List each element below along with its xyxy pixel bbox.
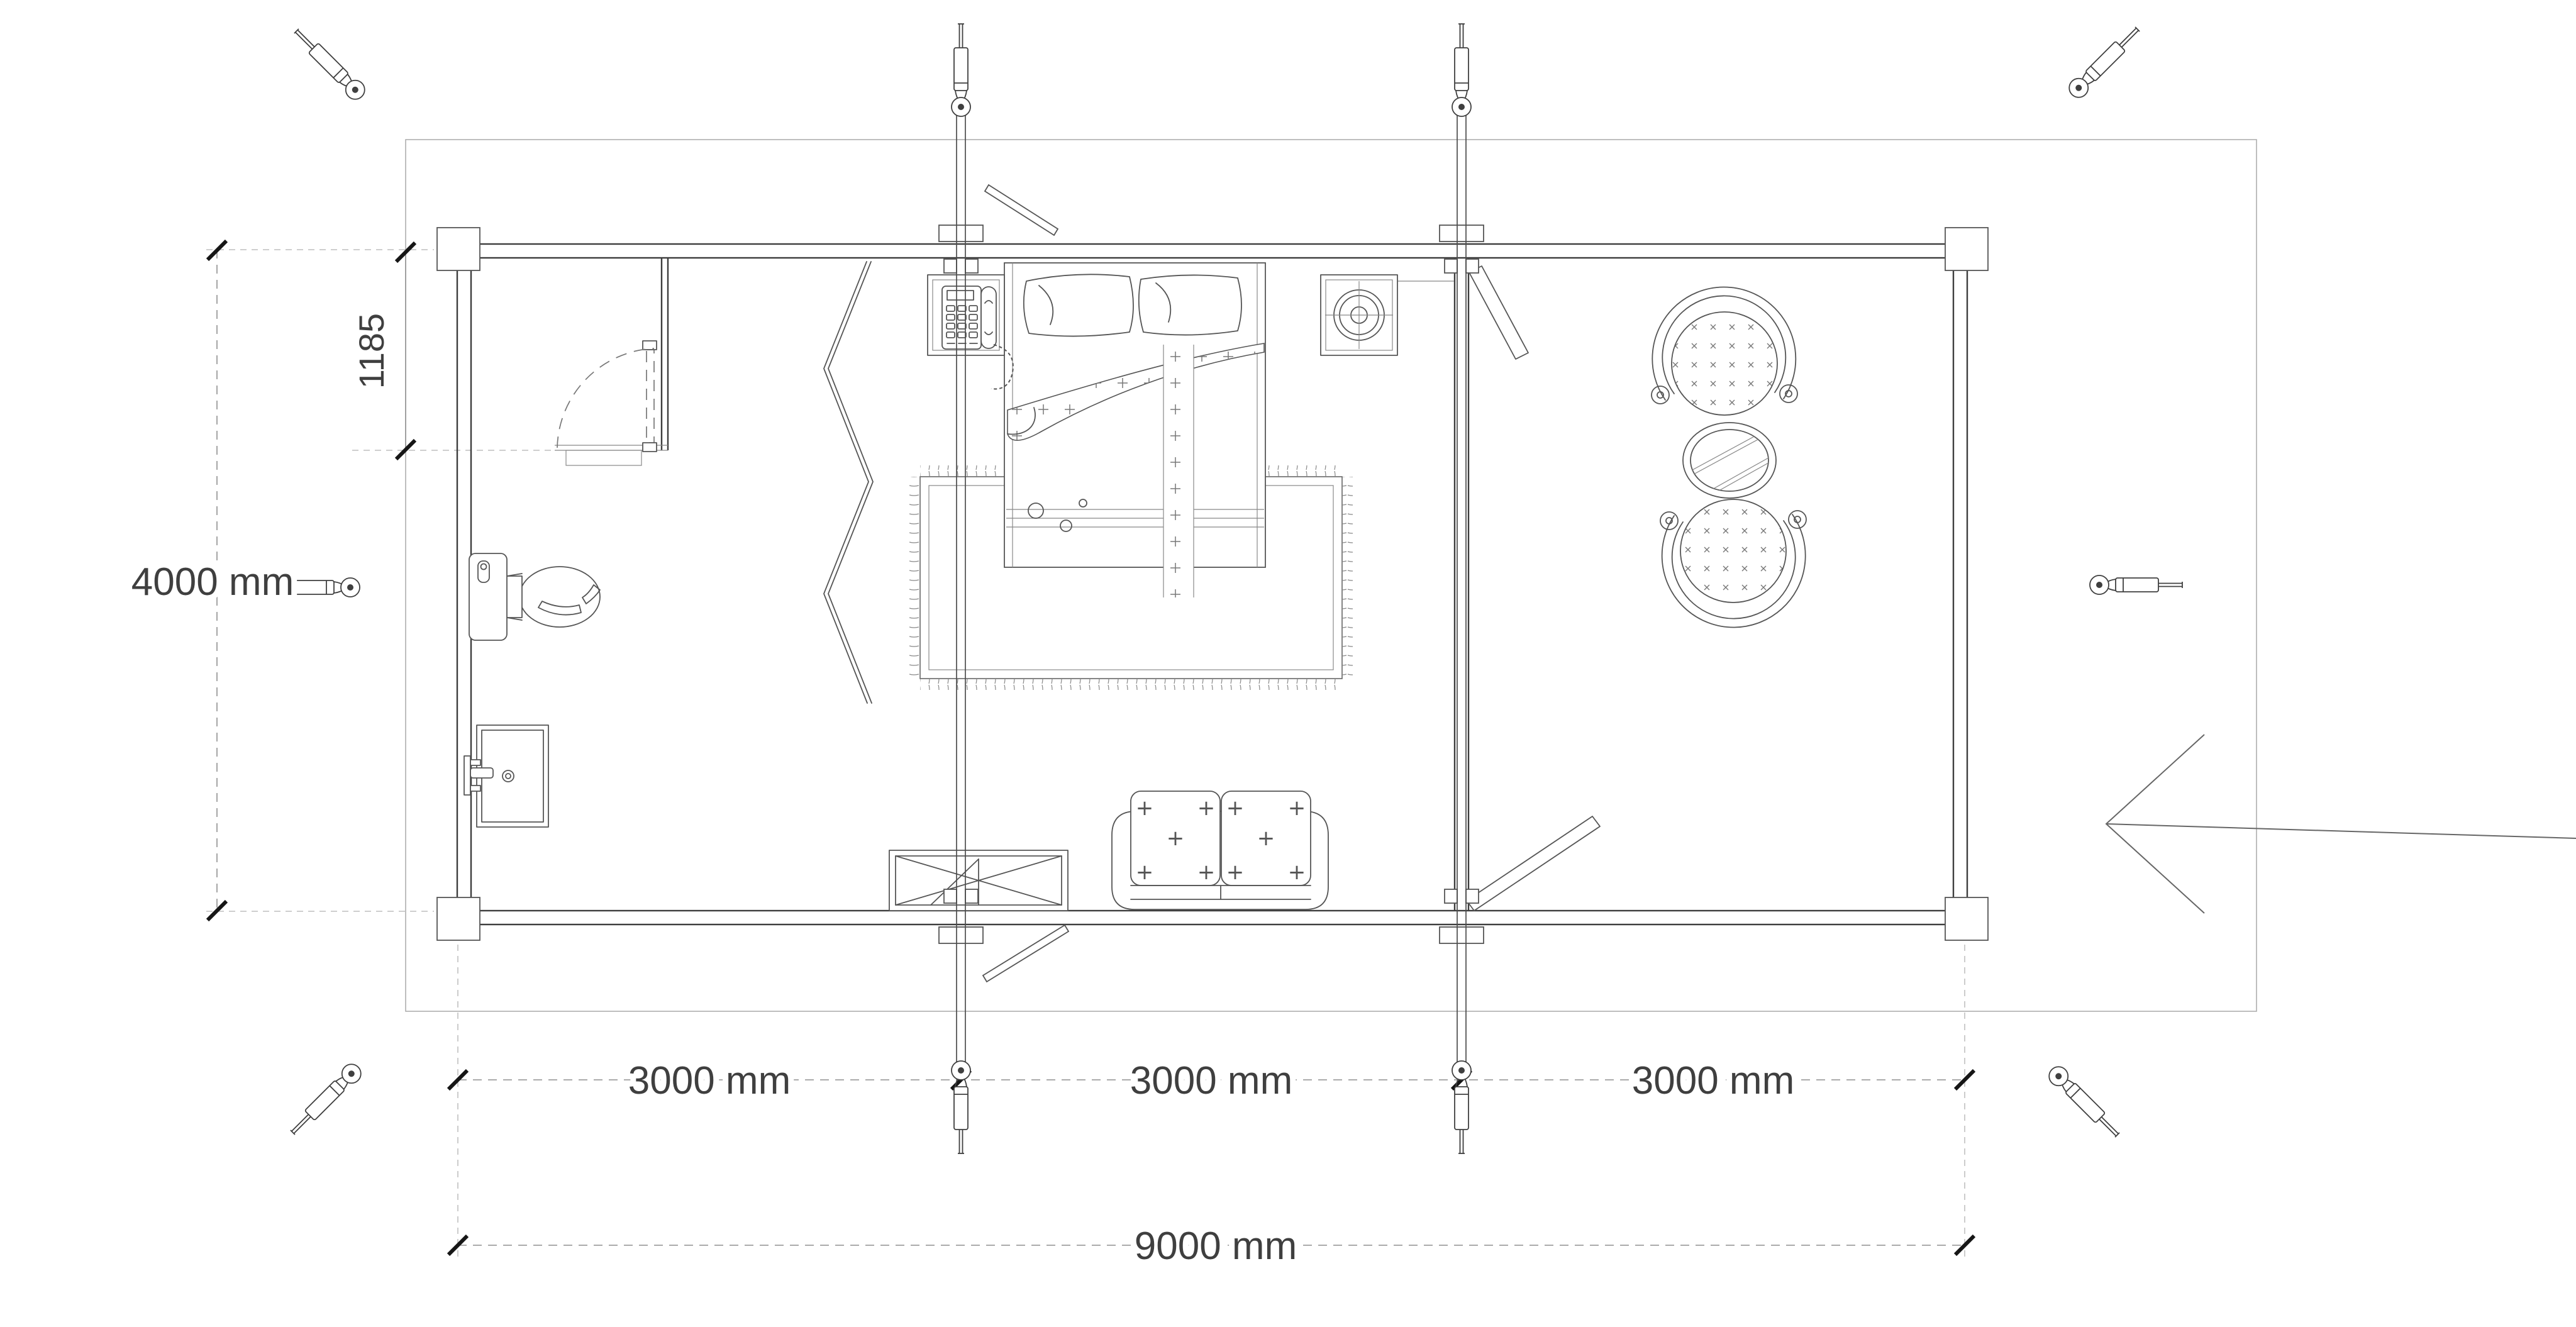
bathroom-sink <box>464 725 548 827</box>
telephone-nightstand <box>928 275 1013 389</box>
height-dimension-label: 4000 mm <box>131 560 294 604</box>
turnbuckle-icon <box>2090 575 2182 594</box>
svg-text:+: + <box>1288 796 1306 821</box>
turnbuckle-icon <box>290 25 369 103</box>
pillow <box>1139 275 1241 335</box>
svg-text:+: + <box>1167 826 1185 851</box>
armchair-bottom <box>1660 499 1806 627</box>
pillow <box>1024 274 1133 336</box>
svg-text:+: + <box>1136 860 1154 885</box>
door-swing-arc <box>557 348 654 448</box>
bathroom-door <box>557 341 657 452</box>
turnbuckle-icon <box>1452 24 1471 116</box>
turnbuckle-icon <box>1452 1061 1471 1153</box>
loveseat-sofa: ++ + ++ ++ + ++ <box>1112 791 1328 909</box>
burner-nightstand <box>1321 275 1397 355</box>
crossed-window <box>889 850 1068 911</box>
bay-dimension-label: 3000 mm <box>1130 1059 1292 1102</box>
svg-text:+: + <box>1197 796 1216 821</box>
door-offset-dimension-label: 1185 <box>352 313 391 389</box>
turnbuckle-icon <box>2045 1063 2124 1141</box>
svg-text:+: + <box>1257 826 1275 851</box>
svg-text:+: + <box>1226 860 1245 885</box>
bay-dimension-label: 3000 mm <box>1632 1059 1794 1102</box>
svg-text:+: + <box>1197 860 1216 885</box>
floor-plan-page: ++ + ++ ++ + ++ <box>0 0 2576 1327</box>
handset-icon <box>981 287 996 348</box>
door-leaf <box>647 350 654 443</box>
folding-screen <box>824 262 873 703</box>
round-coffee-table <box>1673 423 1789 509</box>
svg-text:+: + <box>1136 796 1154 821</box>
total-width-dimension-label: 9000 mm <box>1135 1224 1297 1268</box>
turnbuckle-icon <box>286 1060 365 1139</box>
double-bed <box>1004 263 1265 597</box>
floor-plan-canvas: ++ + ++ ++ + ++ <box>0 0 2576 1327</box>
bed-runner <box>1163 345 1194 597</box>
turnbuckle-icon <box>952 1061 970 1153</box>
seating-group <box>1652 287 1806 628</box>
toilet <box>469 553 600 640</box>
turnbuckle-icon <box>2065 23 2144 101</box>
turnbuckle-icon <box>952 24 970 116</box>
svg-text:+: + <box>1288 860 1306 885</box>
armchair-top <box>1652 287 1797 415</box>
entry-arrow <box>2106 735 2576 913</box>
bay-dimension-label: 3000 mm <box>628 1059 791 1102</box>
svg-text:+: + <box>1226 796 1245 821</box>
